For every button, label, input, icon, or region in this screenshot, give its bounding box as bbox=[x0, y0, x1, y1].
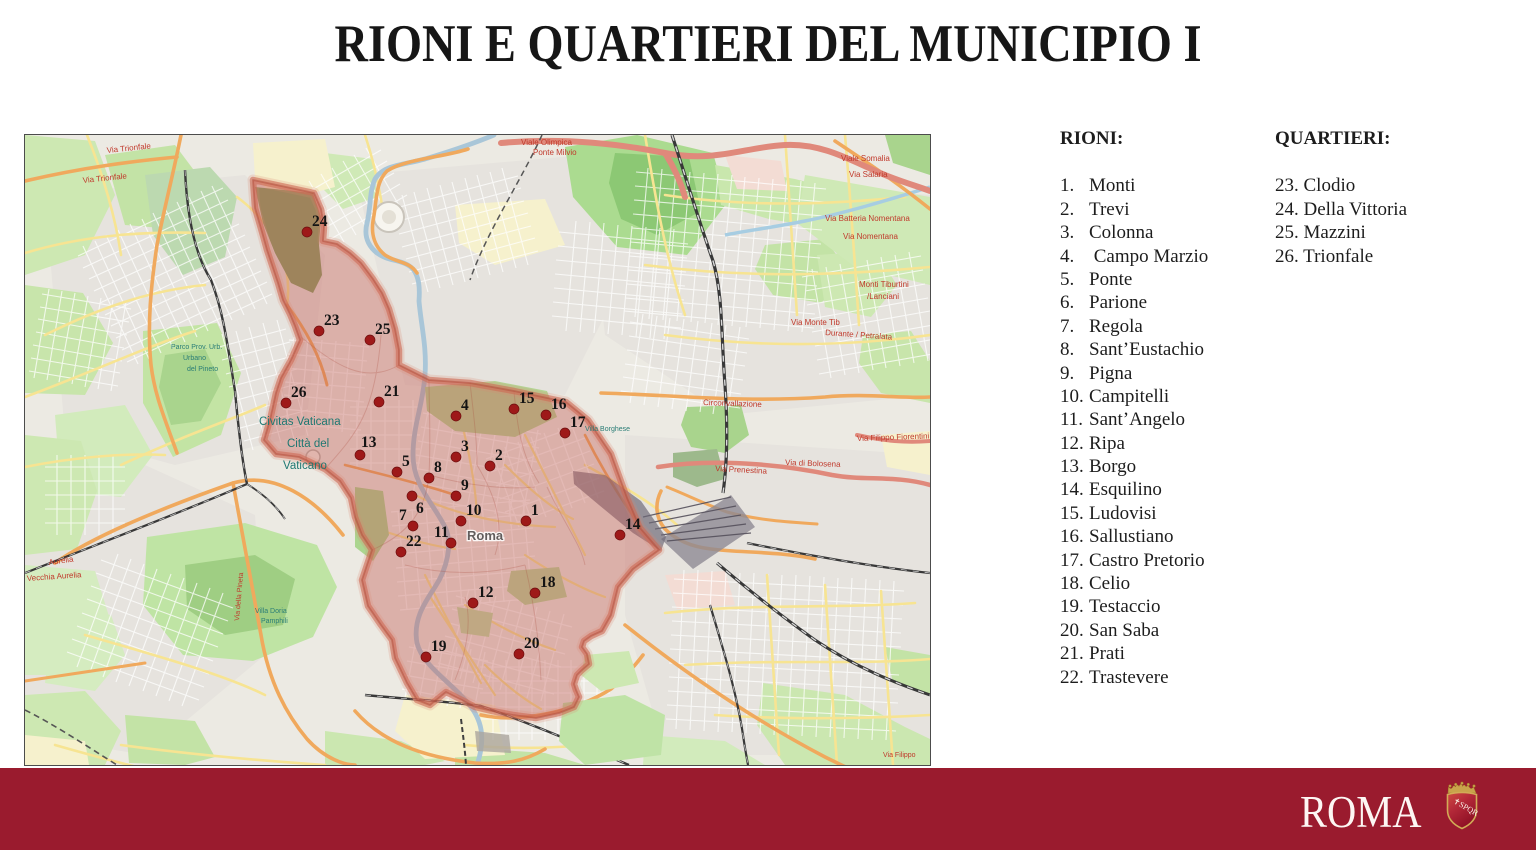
svg-text:20: 20 bbox=[524, 635, 540, 652]
svg-text:1: 1 bbox=[531, 502, 539, 519]
svg-text:8: 8 bbox=[434, 459, 442, 476]
svg-text:Via Filippo: Via Filippo bbox=[883, 752, 916, 759]
svg-text:4: 4 bbox=[461, 397, 469, 414]
svg-text:15: 15 bbox=[519, 390, 535, 407]
svg-text:Città del: Città del bbox=[287, 438, 329, 450]
svg-text:3: 3 bbox=[461, 438, 469, 455]
svg-text:Urbano: Urbano bbox=[183, 355, 206, 362]
svg-text:Parco Prov. Urb.: Parco Prov. Urb. bbox=[171, 344, 222, 351]
svg-text:Villa Doria: Villa Doria bbox=[255, 608, 287, 615]
svg-text:7: 7 bbox=[399, 507, 407, 524]
svg-text:Villa Borghese: Villa Borghese bbox=[585, 426, 630, 433]
svg-text:5: 5 bbox=[402, 453, 410, 470]
svg-text:21: 21 bbox=[384, 383, 400, 400]
svg-text:23: 23 bbox=[324, 312, 340, 329]
svg-text:/Lanciani: /Lanciani bbox=[867, 292, 899, 301]
svg-text:Monti Tiburtini: Monti Tiburtini bbox=[859, 280, 909, 289]
svg-text:2: 2 bbox=[495, 447, 503, 464]
svg-text:18: 18 bbox=[540, 574, 556, 591]
svg-text:26: 26 bbox=[291, 384, 307, 401]
svg-text:del Pineto: del Pineto bbox=[187, 366, 218, 373]
svg-text:Viale Somalia: Viale Somalia bbox=[841, 154, 890, 163]
svg-text:16: 16 bbox=[551, 396, 567, 413]
svg-text:11: 11 bbox=[434, 524, 449, 541]
svg-text:10: 10 bbox=[466, 502, 482, 519]
svg-text:Via Batteria Nomentana: Via Batteria Nomentana bbox=[825, 214, 910, 223]
svg-text:13: 13 bbox=[361, 434, 377, 451]
svg-text:Viale Olimpica: Viale Olimpica bbox=[521, 138, 573, 147]
svg-text:9: 9 bbox=[461, 477, 469, 494]
svg-text:Vaticano: Vaticano bbox=[283, 460, 327, 472]
svg-text:Roma: Roma bbox=[467, 528, 504, 543]
svg-text:Pamphili: Pamphili bbox=[261, 618, 288, 625]
svg-text:6: 6 bbox=[416, 500, 424, 517]
svg-text:Via Monte Tib: Via Monte Tib bbox=[791, 318, 840, 327]
svg-text:19: 19 bbox=[431, 638, 447, 655]
svg-text:Civitas Vaticana: Civitas Vaticana bbox=[259, 416, 341, 428]
svg-text:24: 24 bbox=[312, 213, 328, 230]
svg-text:12: 12 bbox=[478, 584, 494, 601]
svg-text:17: 17 bbox=[570, 414, 586, 431]
svg-text:Via Nomentana: Via Nomentana bbox=[843, 232, 899, 241]
svg-text:Ponte Milvio: Ponte Milvio bbox=[533, 148, 577, 157]
svg-text:25: 25 bbox=[375, 321, 391, 338]
svg-text:22: 22 bbox=[406, 533, 422, 550]
svg-text:Via Salaria: Via Salaria bbox=[849, 170, 888, 179]
svg-text:14: 14 bbox=[625, 516, 641, 533]
